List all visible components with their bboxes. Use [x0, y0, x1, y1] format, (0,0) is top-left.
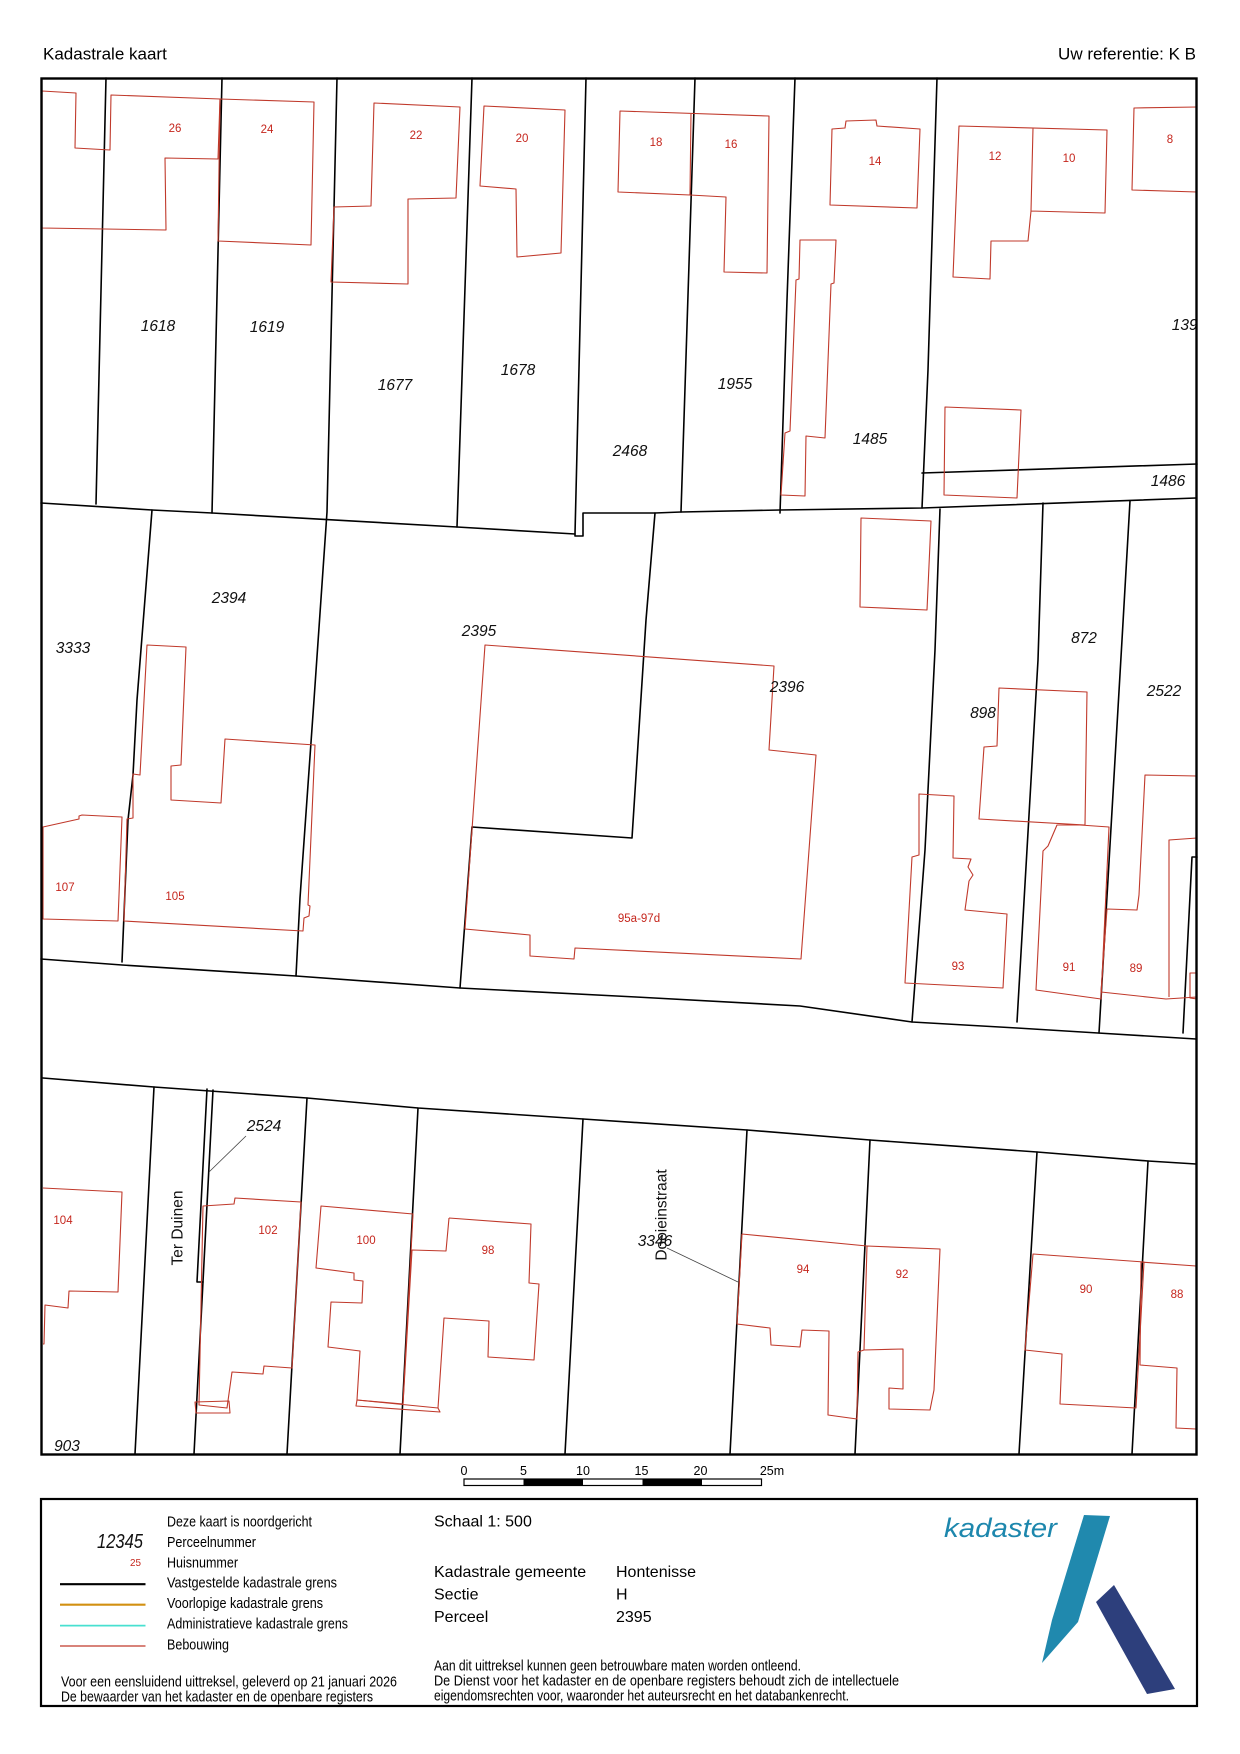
svg-text:14: 14 [869, 156, 882, 168]
svg-text:15: 15 [635, 1464, 649, 1478]
svg-text:105: 105 [165, 891, 184, 903]
svg-text:1678: 1678 [501, 362, 536, 379]
svg-text:89: 89 [1130, 963, 1143, 975]
svg-text:20: 20 [516, 133, 529, 145]
svg-text:1396: 1396 [1172, 317, 1207, 334]
svg-text:90: 90 [1080, 1284, 1093, 1296]
svg-text:Kadastrale gemeente: Kadastrale gemeente [434, 1564, 586, 1581]
svg-text:Vastgestelde kadastrale grens: Vastgestelde kadastrale grens [167, 1574, 337, 1591]
svg-text:Bebouwing: Bebouwing [167, 1636, 229, 1653]
svg-text:2522: 2522 [1146, 683, 1182, 700]
svg-text:24: 24 [261, 124, 274, 136]
svg-text:kadaster: kadaster [944, 1513, 1058, 1543]
svg-text:12345: 12345 [97, 1531, 144, 1553]
svg-text:98: 98 [482, 1245, 495, 1257]
svg-text:2395: 2395 [616, 1609, 652, 1626]
svg-text:104: 104 [53, 1215, 73, 1227]
svg-text:2394: 2394 [211, 590, 247, 607]
svg-text:10: 10 [1063, 153, 1076, 165]
svg-text:1485: 1485 [853, 431, 888, 448]
svg-text:95a-97d: 95a-97d [618, 913, 660, 925]
svg-text:Ter Duinen: Ter Duinen [170, 1191, 187, 1266]
svg-text:De bewaarder van het kadaster: De bewaarder van het kadaster en de open… [61, 1689, 373, 1706]
svg-text:8: 8 [1167, 134, 1173, 146]
svg-text:2395: 2395 [461, 623, 497, 640]
svg-text:100: 100 [356, 1235, 375, 1247]
svg-text:1486: 1486 [1151, 473, 1186, 490]
svg-text:Perceelnummer: Perceelnummer [167, 1534, 256, 1551]
svg-text:22: 22 [410, 130, 423, 142]
svg-text:Schaal 1: 500: Schaal 1: 500 [434, 1514, 532, 1531]
svg-text:Administratieve kadastrale gre: Administratieve kadastrale grens [167, 1616, 348, 1633]
svg-text:Dooieinstraat: Dooieinstraat [654, 1169, 671, 1261]
svg-text:92: 92 [896, 1269, 909, 1281]
svg-text:25m: 25m [760, 1464, 784, 1478]
svg-text:H: H [616, 1587, 628, 1604]
svg-text:eigendomsrechten voor, waarond: eigendomsrechten voor, waaronder het aut… [434, 1688, 849, 1705]
svg-text:Voorlopige kadastrale grens: Voorlopige kadastrale grens [167, 1595, 323, 1612]
svg-text:88: 88 [1171, 1289, 1184, 1301]
svg-text:1618: 1618 [141, 318, 176, 335]
svg-text:Hontenisse: Hontenisse [616, 1564, 696, 1581]
svg-text:10: 10 [576, 1464, 590, 1478]
svg-text:1677: 1677 [378, 377, 414, 394]
svg-text:898: 898 [970, 705, 996, 722]
svg-text:93: 93 [952, 961, 965, 973]
svg-text:91: 91 [1063, 962, 1076, 974]
svg-text:903: 903 [54, 1438, 80, 1455]
svg-text:Deze kaart is noordgericht: Deze kaart is noordgericht [167, 1513, 313, 1530]
svg-text:2396: 2396 [769, 679, 805, 696]
svg-text:2468: 2468 [612, 443, 648, 460]
svg-text:102: 102 [258, 1225, 277, 1237]
svg-text:1955: 1955 [718, 376, 753, 393]
svg-text:107: 107 [55, 882, 74, 894]
svg-text:Sectie: Sectie [434, 1587, 479, 1604]
svg-text:16: 16 [725, 139, 738, 151]
svg-text:2524: 2524 [246, 1118, 282, 1135]
svg-text:Uw referentie: K B: Uw referentie: K B [1058, 45, 1196, 64]
svg-text:Perceel: Perceel [434, 1609, 488, 1626]
svg-text:3333: 3333 [56, 640, 91, 657]
svg-text:0: 0 [461, 1464, 468, 1478]
svg-text:25: 25 [130, 1557, 141, 1569]
svg-text:12: 12 [989, 151, 1002, 163]
svg-text:Huisnummer: Huisnummer [167, 1554, 238, 1571]
svg-text:Kadastrale kaart: Kadastrale kaart [43, 45, 167, 64]
svg-text:20: 20 [694, 1464, 708, 1478]
svg-text:26: 26 [169, 123, 182, 135]
svg-text:872: 872 [1071, 630, 1097, 647]
svg-text:18: 18 [650, 137, 663, 149]
svg-text:94: 94 [797, 1264, 810, 1276]
svg-text:5: 5 [520, 1464, 527, 1478]
svg-text:1619: 1619 [250, 319, 285, 336]
